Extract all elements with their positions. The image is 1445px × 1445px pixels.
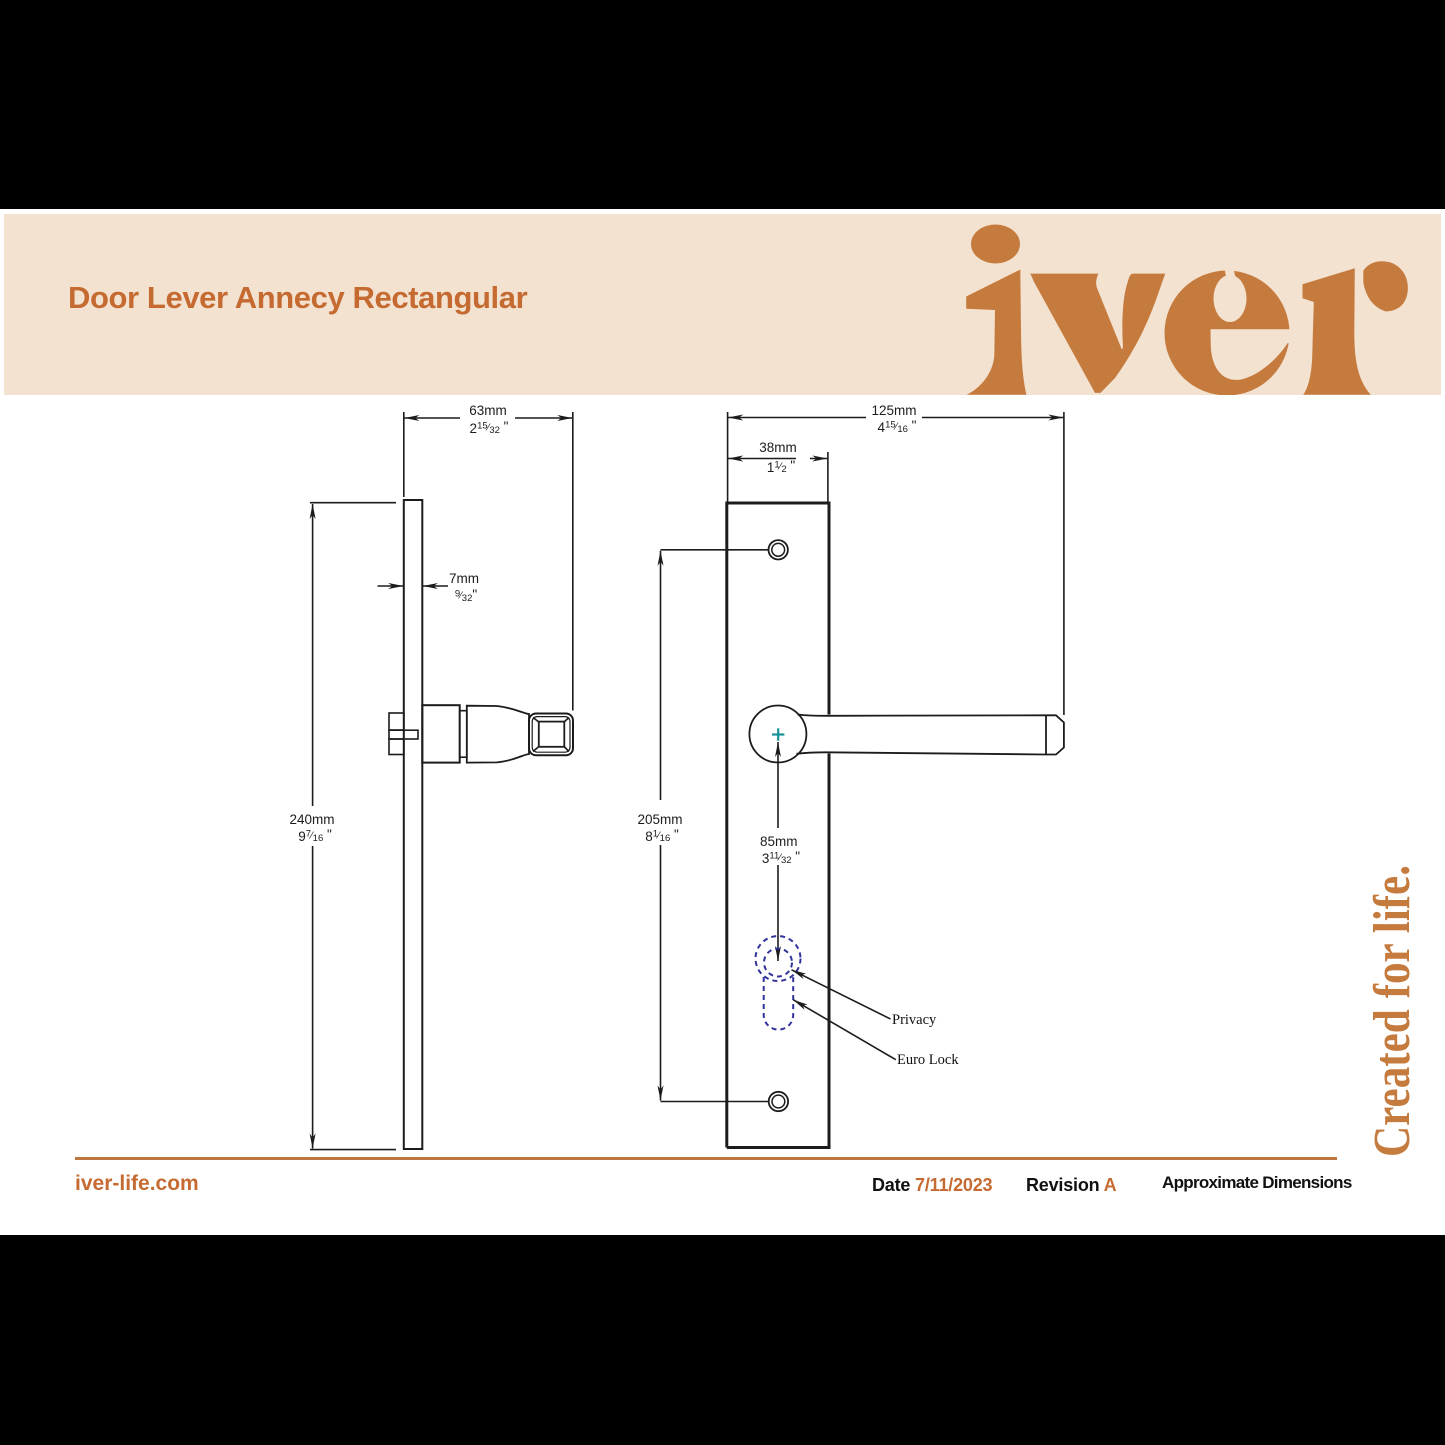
- svg-text:415⁄16 ": 415⁄16 ": [878, 418, 917, 435]
- svg-text:Created for life.: Created for life.: [1364, 865, 1421, 1157]
- svg-text:11⁄2 ": 11⁄2 ": [767, 458, 796, 475]
- svg-text:63mm: 63mm: [469, 403, 507, 418]
- svg-text:81⁄16 ": 81⁄16 ": [645, 827, 679, 844]
- svg-text:311⁄32 ": 311⁄32 ": [762, 849, 800, 866]
- svg-text:Euro Lock: Euro Lock: [897, 1052, 959, 1068]
- svg-text:Privacy: Privacy: [892, 1012, 937, 1028]
- svg-text:215⁄32 ": 215⁄32 ": [470, 419, 509, 436]
- svg-text:97⁄16 ": 97⁄16 ": [298, 827, 332, 844]
- svg-text:85mm: 85mm: [760, 834, 798, 849]
- svg-text:38mm: 38mm: [759, 440, 797, 455]
- svg-text:205mm: 205mm: [637, 812, 682, 827]
- svg-text:9⁄32": 9⁄32": [455, 587, 478, 604]
- svg-text:7mm: 7mm: [449, 571, 479, 586]
- svg-text:240mm: 240mm: [289, 812, 334, 827]
- svg-text:125mm: 125mm: [871, 403, 916, 418]
